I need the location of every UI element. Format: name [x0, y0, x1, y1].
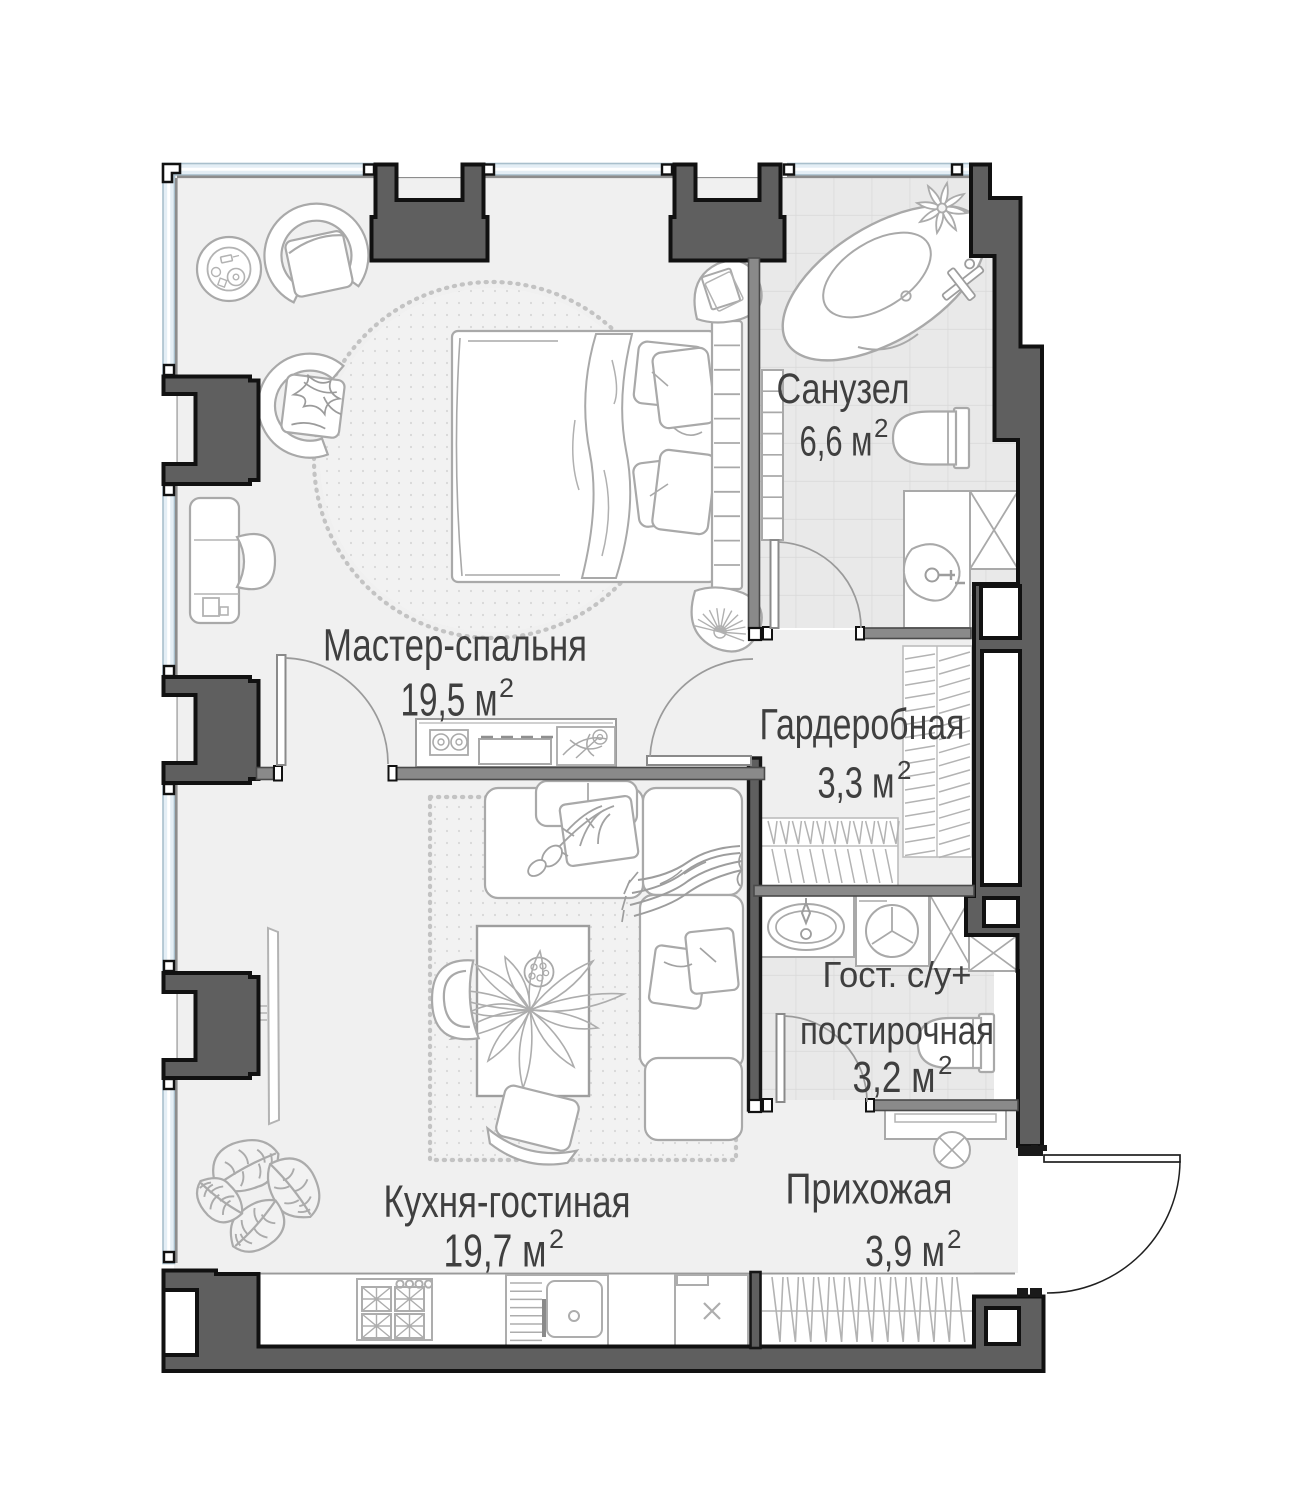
svg-text:2: 2	[897, 755, 911, 785]
svg-text:Гардеробная: Гардеробная	[760, 700, 965, 749]
svg-text:Санузел: Санузел	[777, 365, 910, 413]
svg-text:2: 2	[938, 1050, 952, 1080]
svg-text:6,6 м: 6,6 м	[800, 418, 873, 466]
svg-text:19,7 м: 19,7 м	[444, 1225, 547, 1277]
svg-text:Прихожая: Прихожая	[786, 1165, 953, 1214]
svg-text:2: 2	[549, 1224, 564, 1254]
svg-text:Гост. с/у+: Гост. с/у+	[823, 954, 972, 995]
svg-text:Кухня-гостиная: Кухня-гостиная	[384, 1176, 631, 1227]
svg-text:Мастер-спальня: Мастер-спальня	[323, 620, 587, 671]
svg-text:постирочная: постирочная	[800, 1009, 994, 1053]
svg-text:2: 2	[499, 673, 514, 703]
svg-text:3,2 м: 3,2 м	[853, 1053, 936, 1102]
svg-text:3,9 м: 3,9 м	[865, 1227, 945, 1276]
svg-text:2: 2	[947, 1224, 961, 1254]
svg-text:2: 2	[874, 413, 888, 443]
svg-text:3,3 м: 3,3 м	[818, 759, 895, 808]
svg-text:19,5 м: 19,5 м	[401, 674, 498, 726]
